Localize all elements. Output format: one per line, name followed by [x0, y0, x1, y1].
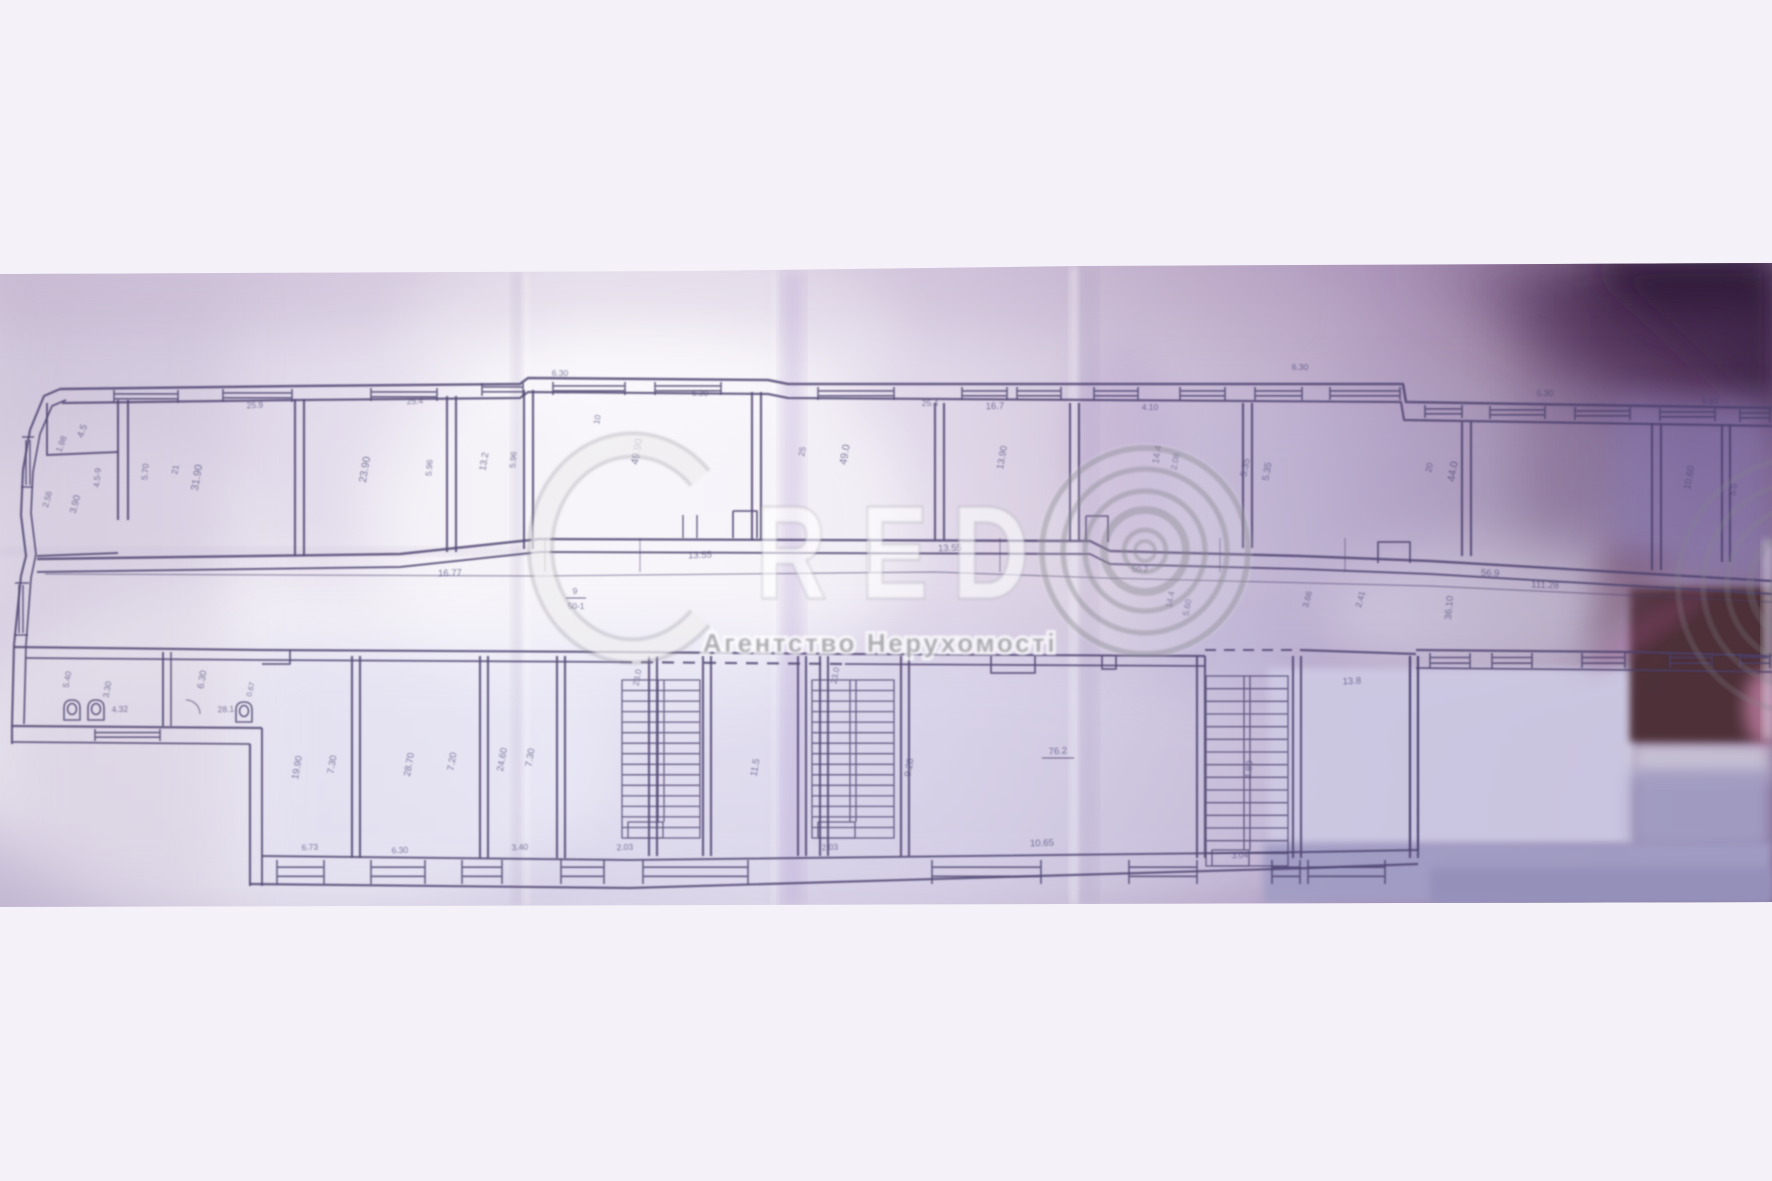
svg-text:36.10: 36.10 [1443, 595, 1456, 620]
svg-text:4.10: 4.10 [1142, 402, 1159, 412]
svg-text:21: 21 [169, 464, 181, 475]
svg-text:25.4: 25.4 [406, 396, 423, 407]
svg-text:25.4: 25.4 [922, 398, 939, 408]
svg-text:6.73: 6.73 [301, 842, 318, 853]
svg-text:3.04: 3.04 [1231, 850, 1248, 861]
svg-text:25: 25 [796, 446, 808, 457]
svg-text:Агентство Нерухомості: Агентство Нерухомості [703, 628, 1057, 658]
svg-text:9: 9 [573, 586, 578, 596]
svg-text:10: 10 [591, 414, 603, 425]
svg-text:6.30: 6.30 [391, 845, 408, 856]
svg-text:4.89: 4.89 [1243, 760, 1256, 779]
svg-text:D: D [952, 479, 1029, 626]
svg-text:6.30: 6.30 [1292, 362, 1309, 372]
svg-text:6.30: 6.30 [692, 388, 709, 398]
svg-text:5.96: 5.96 [507, 451, 518, 469]
svg-text:6.30: 6.30 [552, 368, 569, 378]
svg-text:R: R [756, 479, 826, 626]
svg-text:5.70: 5.70 [139, 463, 150, 481]
svg-text:4.5-9: 4.5-9 [91, 467, 103, 487]
svg-text:4.32: 4.32 [111, 704, 128, 715]
svg-text:3.40: 3.40 [511, 842, 528, 853]
svg-text:25.9: 25.9 [246, 400, 263, 411]
svg-text:20: 20 [1423, 462, 1435, 473]
svg-text:2.03: 2.03 [616, 842, 633, 853]
svg-text:76.2: 76.2 [1048, 746, 1067, 758]
svg-text:5.30: 5.30 [1537, 388, 1554, 398]
svg-text:13.8: 13.8 [1342, 676, 1361, 688]
svg-text:5.30: 5.30 [1702, 396, 1719, 406]
svg-text:56.9: 56.9 [1481, 568, 1500, 580]
svg-text:28.1: 28.1 [217, 704, 234, 715]
svg-text:5.96: 5.96 [423, 459, 434, 477]
svg-text:13.55: 13.55 [688, 550, 712, 562]
svg-text:16.7: 16.7 [985, 401, 1004, 413]
svg-text:111.28: 111.28 [1531, 580, 1559, 592]
svg-text:2.03: 2.03 [821, 842, 838, 853]
svg-text:16.77: 16.77 [438, 568, 462, 580]
svg-text:10.65: 10.65 [1030, 838, 1054, 850]
svg-text:E: E [861, 479, 928, 626]
